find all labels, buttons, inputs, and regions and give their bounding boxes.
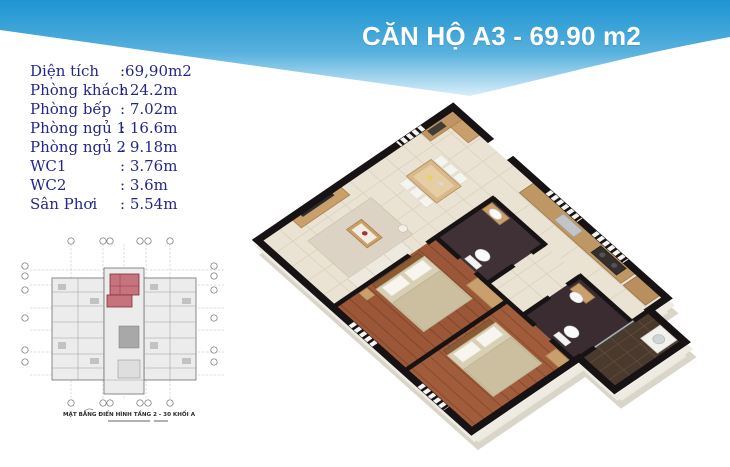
spec-row-dien-tich: Diện tích :69,90m2 (30, 62, 192, 81)
brochure-page: CĂN HỘ A3 - 69.90 m2 Diện tích :69,90m2 … (0, 0, 730, 467)
elevator-core (119, 326, 139, 348)
spec-value: : 7.02m (120, 100, 177, 119)
spec-row-phong-ngu-2: Phòng ngủ 2 : 9.18m (30, 138, 192, 157)
spec-label: WC1 (30, 157, 120, 176)
spec-value: : 3.76m (120, 157, 177, 176)
site-plan: MẶT BẰNG ĐIỂN HÌNH TẦNG 2 - 30 KHỐI A (12, 230, 247, 435)
floor-plan-3d (240, 85, 722, 467)
spec-row-phong-khach: Phòng khách : 24.2m (30, 81, 192, 100)
spec-row-phong-bep: Phòng bếp : 7.02m (30, 100, 192, 119)
spec-value: : 5.54m (120, 195, 177, 214)
spec-value: : 3.6m (120, 176, 168, 195)
spec-label: WC2 (30, 176, 120, 195)
spec-value: :69,90m2 (120, 62, 192, 81)
spec-row-wc2: WC2 : 3.6m (30, 176, 192, 195)
spec-label: Phòng khách (30, 81, 120, 100)
spec-value: : 24.2m (120, 81, 177, 100)
spec-value: : 16.6m (120, 119, 177, 138)
caption-scale (154, 420, 168, 422)
spec-row-wc1: WC1 : 3.76m (30, 157, 192, 176)
caption-subline (108, 420, 150, 422)
spec-label: Phòng ngủ 2 (30, 138, 120, 157)
spec-label: Diện tích (30, 62, 120, 81)
spec-row-san-phoi: Sân Phơi : 5.54m (30, 195, 192, 214)
spec-list: Diện tích :69,90m2 Phòng khách : 24.2m P… (30, 62, 192, 214)
spec-row-phong-ngu-1: Phòng ngủ 1 : 16.6m (30, 119, 192, 138)
spec-label: Phòng ngủ 1 (30, 119, 120, 138)
stair-core (118, 360, 140, 378)
floor-plan-3d-drawing (240, 85, 722, 467)
spec-value: : 9.18m (120, 138, 177, 157)
page-title: CĂN HỘ A3 - 69.90 m2 (362, 21, 641, 52)
site-plan-caption: MẶT BẰNG ĐIỂN HÌNH TẦNG 2 - 30 KHỐI A (63, 409, 196, 418)
spec-label: Phòng bếp (30, 100, 120, 119)
spec-label: Sân Phơi (30, 195, 120, 214)
site-plan-drawing: MẶT BẰNG ĐIỂN HÌNH TẦNG 2 - 30 KHỐI A (12, 230, 247, 435)
